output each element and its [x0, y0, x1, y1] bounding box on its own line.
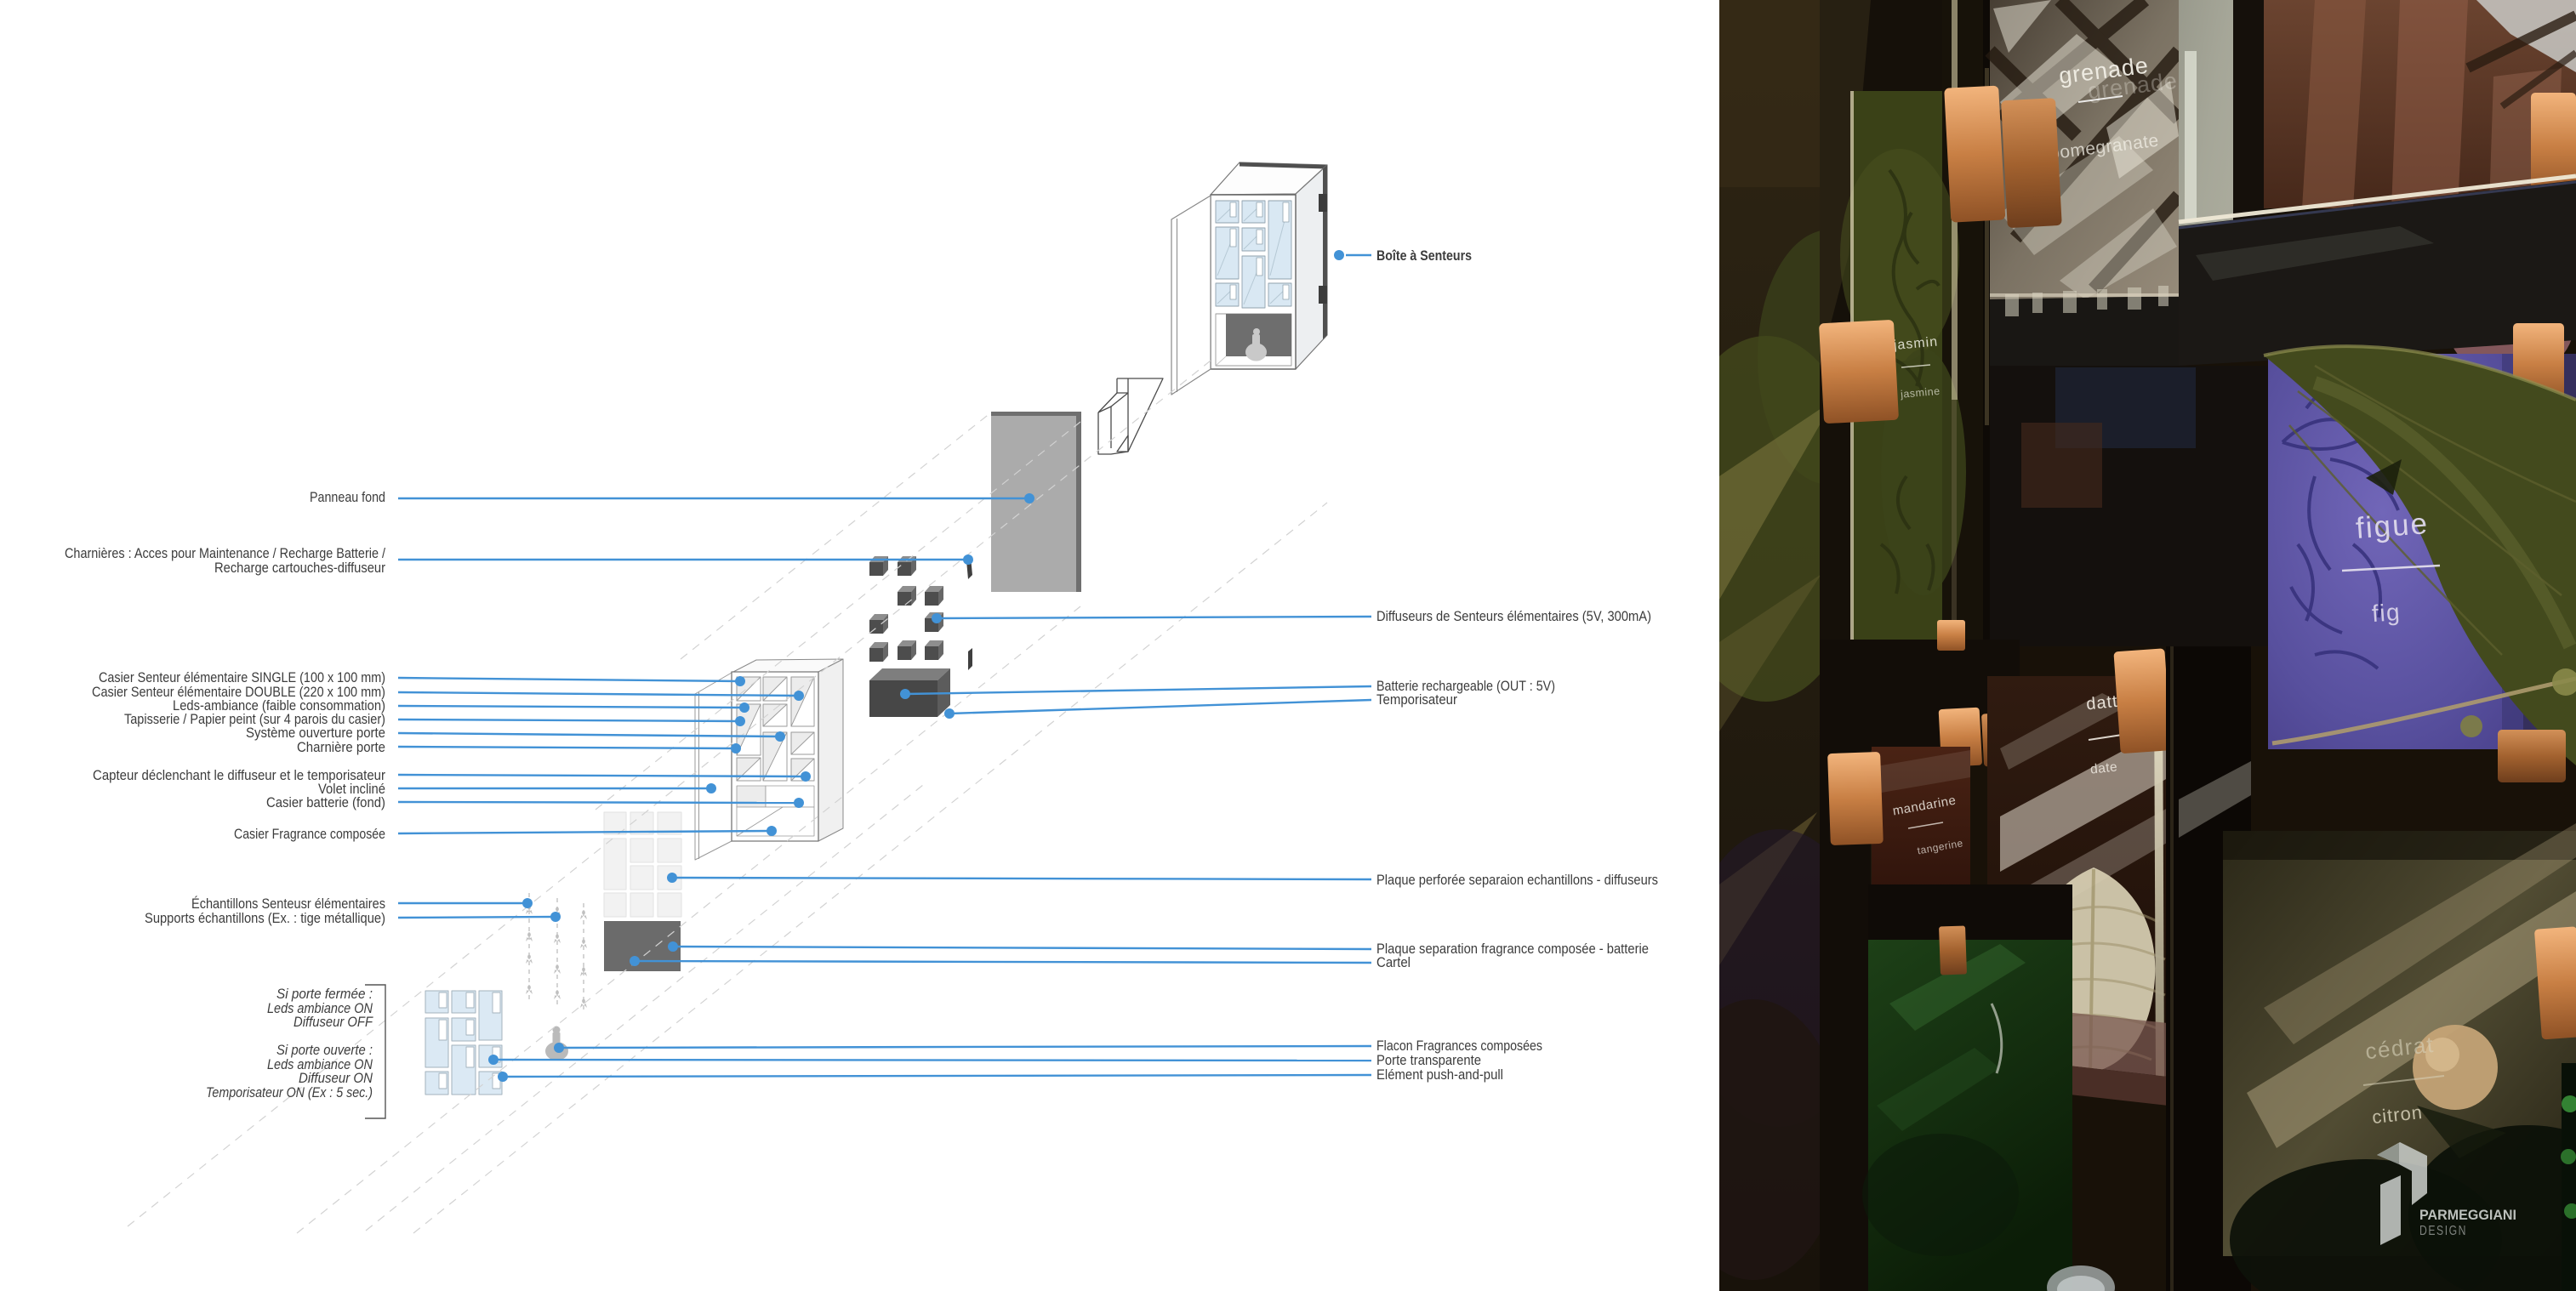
svg-text:Temporisateur: Temporisateur — [1376, 692, 1457, 708]
svg-text:Plaque perforée separaion echa: Plaque perforée separaion echantillons -… — [1376, 873, 1658, 888]
svg-text:Recharge cartouches-diffuseur: Recharge cartouches-diffuseur — [214, 560, 385, 576]
svg-text:Temporisateur ON (Ex : 5 sec.): Temporisateur ON (Ex : 5 sec.) — [206, 1085, 373, 1100]
svg-text:Casier batterie (fond): Casier batterie (fond) — [266, 795, 385, 810]
svg-text:Plaque separation fragrance co: Plaque separation fragrance composée - b… — [1376, 941, 1649, 957]
svg-text:Casier Fragrance composée: Casier Fragrance composée — [234, 827, 385, 842]
svg-text:Échantillons Senteusr élémenta: Échantillons Senteusr élémentaires — [191, 896, 385, 912]
svg-text:Porte transparente: Porte transparente — [1376, 1053, 1481, 1068]
svg-text:Charnière porte: Charnière porte — [297, 740, 385, 755]
svg-text:Charnières : Acces pour Mainte: Charnières : Acces pour Maintenance / Re… — [65, 546, 385, 561]
svg-text:Panneau fond: Panneau fond — [310, 490, 385, 505]
svg-text:date: date — [2089, 759, 2118, 776]
svg-text:fig: fig — [2371, 599, 2402, 627]
svg-text:Boîte à Senteurs: Boîte à Senteurs — [1376, 247, 1472, 264]
svg-text:Si porte ouverte :: Si porte ouverte : — [276, 1043, 373, 1058]
svg-text:Cartel: Cartel — [1376, 955, 1411, 970]
svg-text:Diffuseur OFF: Diffuseur OFF — [294, 1015, 373, 1030]
svg-text:Casier Senteur élémentaire SIN: Casier Senteur élémentaire SINGLE (100 x… — [99, 670, 385, 685]
svg-text:Système ouverture porte: Système ouverture porte — [246, 725, 385, 741]
svg-text:Si porte fermée :: Si porte fermée : — [276, 987, 373, 1002]
svg-text:figue: figue — [2355, 507, 2430, 545]
svg-text:PARMEGGIANI: PARMEGGIANI — [2419, 1207, 2516, 1223]
svg-text:Diffuseurs de Senteurs élément: Diffuseurs de Senteurs élémentaires (5V,… — [1376, 609, 1651, 624]
svg-text:Supports échantillons (Ex. : t: Supports échantillons (Ex. : tige métall… — [145, 911, 385, 926]
svg-text:DESIGN: DESIGN — [2419, 1224, 2467, 1238]
svg-text:Diffuseur ON: Diffuseur ON — [299, 1071, 373, 1086]
svg-text:Flacon Fragrances composées: Flacon Fragrances composées — [1376, 1038, 1542, 1054]
svg-text:Elément push-and-pull: Elément push-and-pull — [1376, 1067, 1503, 1083]
